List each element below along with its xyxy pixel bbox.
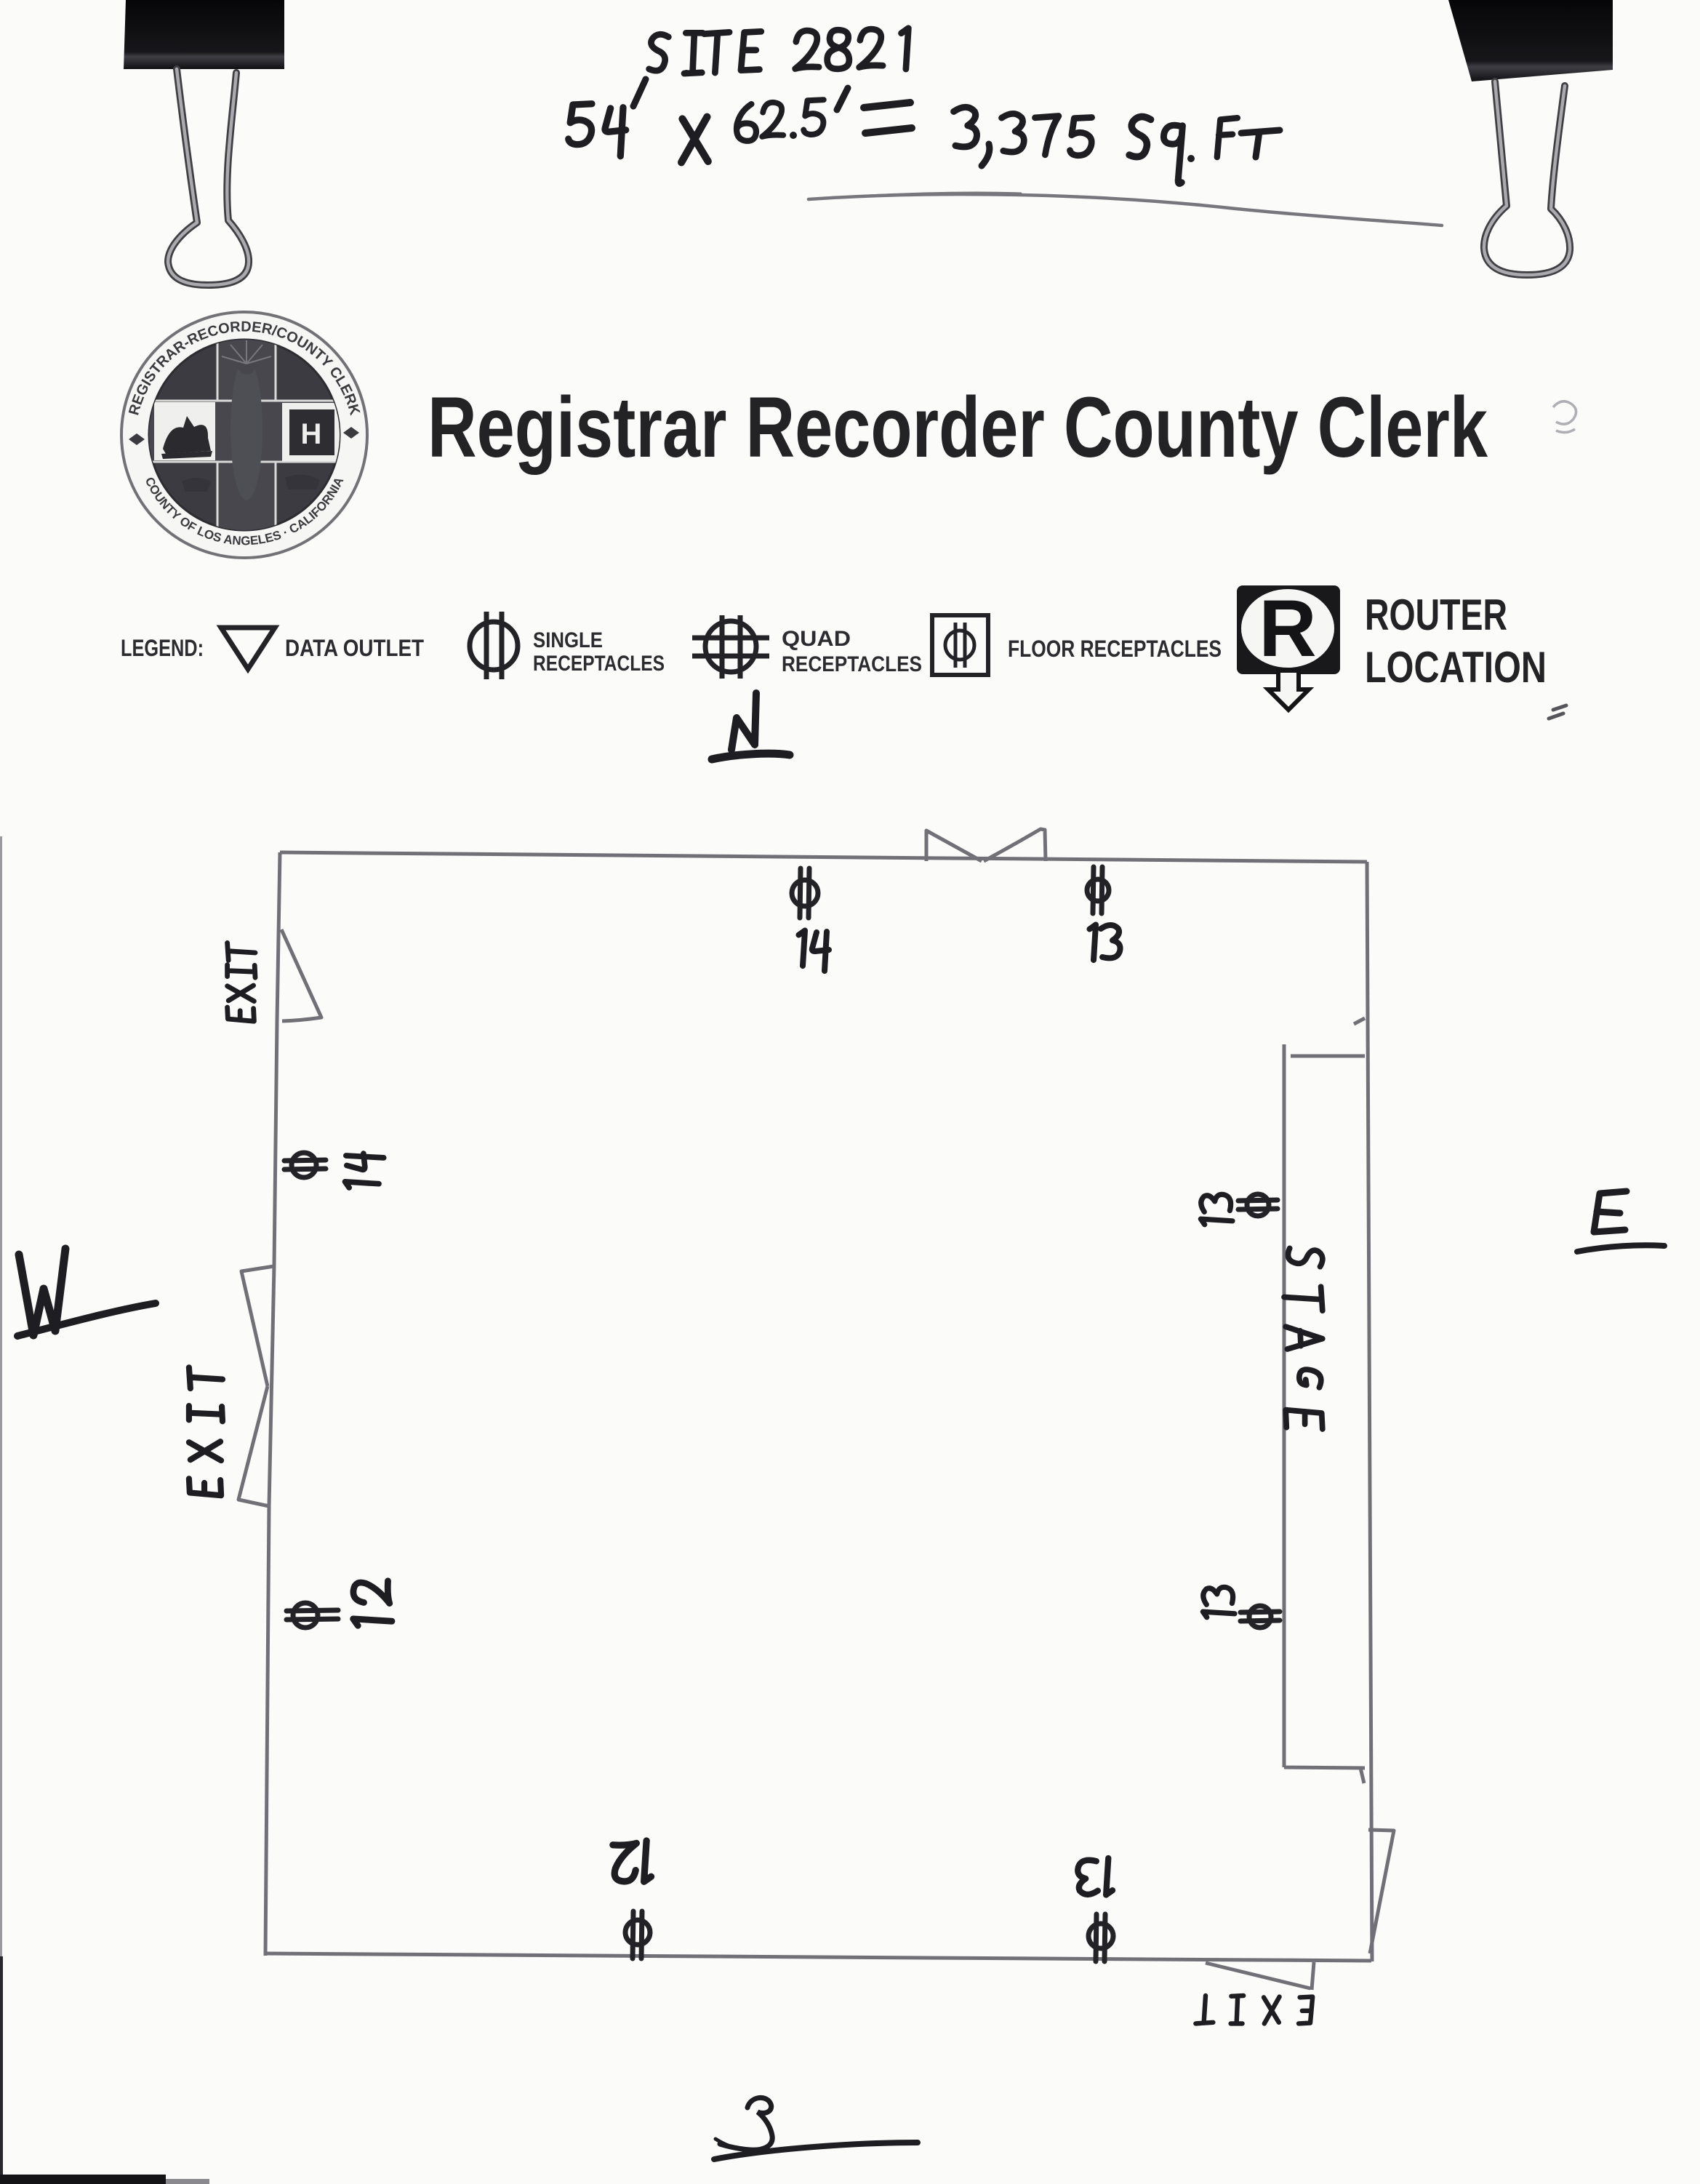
svg-text:Registrar Recorder County Cler: Registrar Recorder County Clerk [428, 380, 1488, 476]
svg-text:SINGLE: SINGLE [533, 628, 603, 652]
svg-text:R: R [1259, 584, 1316, 673]
svg-text:FLOOR RECEPTACLES: FLOOR RECEPTACLES [1008, 636, 1222, 662]
svg-text:RECEPTACLES: RECEPTACLES [533, 652, 665, 676]
svg-text:LEGEND:: LEGEND: [121, 635, 204, 661]
svg-text:DATA OUTLET: DATA OUTLET [285, 635, 424, 661]
svg-text:QUAD: QUAD [782, 627, 851, 651]
svg-text:H: H [301, 418, 322, 450]
svg-text:ROUTER: ROUTER [1365, 591, 1507, 639]
svg-text:RECEPTACLES: RECEPTACLES [782, 652, 922, 676]
svg-text:LOCATION: LOCATION [1365, 643, 1547, 692]
